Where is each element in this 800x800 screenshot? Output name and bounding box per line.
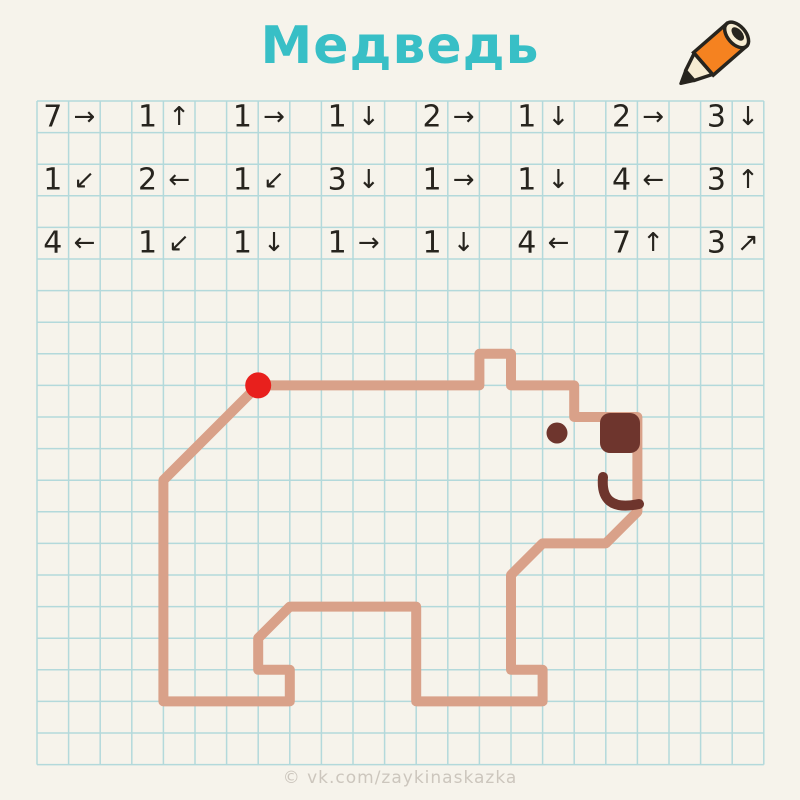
instruction-count: 3 — [328, 163, 347, 198]
instruction-count: 1 — [517, 163, 536, 198]
instruction-arrow-down-left: ↙ — [73, 165, 95, 195]
instruction-count: 4 — [612, 163, 631, 198]
instruction-count: 3 — [707, 99, 726, 134]
instruction-count: 7 — [43, 99, 62, 134]
instruction-arrow-up: ↑ — [642, 228, 664, 258]
instruction-arrow-down: ↓ — [737, 102, 759, 132]
instruction-count: 1 — [138, 99, 157, 134]
instruction-count: 2 — [138, 163, 157, 198]
instruction-count: 1 — [233, 226, 252, 261]
instruction-count: 1 — [422, 226, 441, 261]
instruction-arrow-down: ↓ — [358, 102, 380, 132]
instruction-arrow-right: → — [453, 165, 475, 195]
instruction-arrow-right: → — [73, 102, 95, 132]
instruction-arrow-left: ← — [547, 228, 569, 258]
worksheet-page: Медведь 7→1↑1→1↓2→1↓2→3↓1↙2←1↙3↓1→1↓4←3↑… — [0, 0, 800, 800]
instruction-count: 3 — [707, 163, 726, 198]
instruction-arrow-down: ↓ — [263, 228, 285, 258]
instruction-arrow-left: ← — [168, 165, 190, 195]
instruction-count: 1 — [233, 163, 252, 198]
instruction-arrow-right: → — [453, 102, 475, 132]
instruction-rows: 7→1↑1→1↓2→1↓2→3↓1↙2←1↙3↓1→1↓4←3↑4←1↙1↓1→… — [0, 0, 800, 800]
instruction-arrow-down-left: ↙ — [168, 228, 190, 258]
instruction-arrow-right: → — [263, 102, 285, 132]
instruction-count: 1 — [43, 163, 62, 198]
instruction-count: 2 — [612, 99, 631, 134]
instruction-arrow-left: ← — [73, 228, 95, 258]
instruction-count: 1 — [233, 99, 252, 134]
instruction-arrow-right: → — [358, 228, 380, 258]
instruction-count: 4 — [43, 226, 62, 261]
instruction-count: 1 — [422, 163, 441, 198]
instruction-arrow-down: ↓ — [547, 102, 569, 132]
instruction-arrow-up: ↑ — [737, 165, 759, 195]
instruction-count: 1 — [328, 99, 347, 134]
instruction-count: 7 — [612, 226, 631, 261]
instruction-arrow-down: ↓ — [547, 165, 569, 195]
instruction-count: 2 — [422, 99, 441, 134]
instruction-arrow-up-right: ↗ — [737, 228, 759, 258]
instruction-arrow-down: ↓ — [358, 165, 380, 195]
instruction-arrow-right: → — [642, 102, 664, 132]
instruction-arrow-down: ↓ — [453, 228, 475, 258]
instruction-count: 1 — [328, 226, 347, 261]
instruction-count: 4 — [517, 226, 536, 261]
instruction-arrow-down-left: ↙ — [263, 165, 285, 195]
watermark: © vk.com/zaykinaskazka — [0, 768, 800, 788]
instruction-count: 3 — [707, 226, 726, 261]
instruction-count: 1 — [138, 226, 157, 261]
instruction-arrow-up: ↑ — [168, 102, 190, 132]
instruction-count: 1 — [517, 99, 536, 134]
instruction-arrow-left: ← — [642, 165, 664, 195]
